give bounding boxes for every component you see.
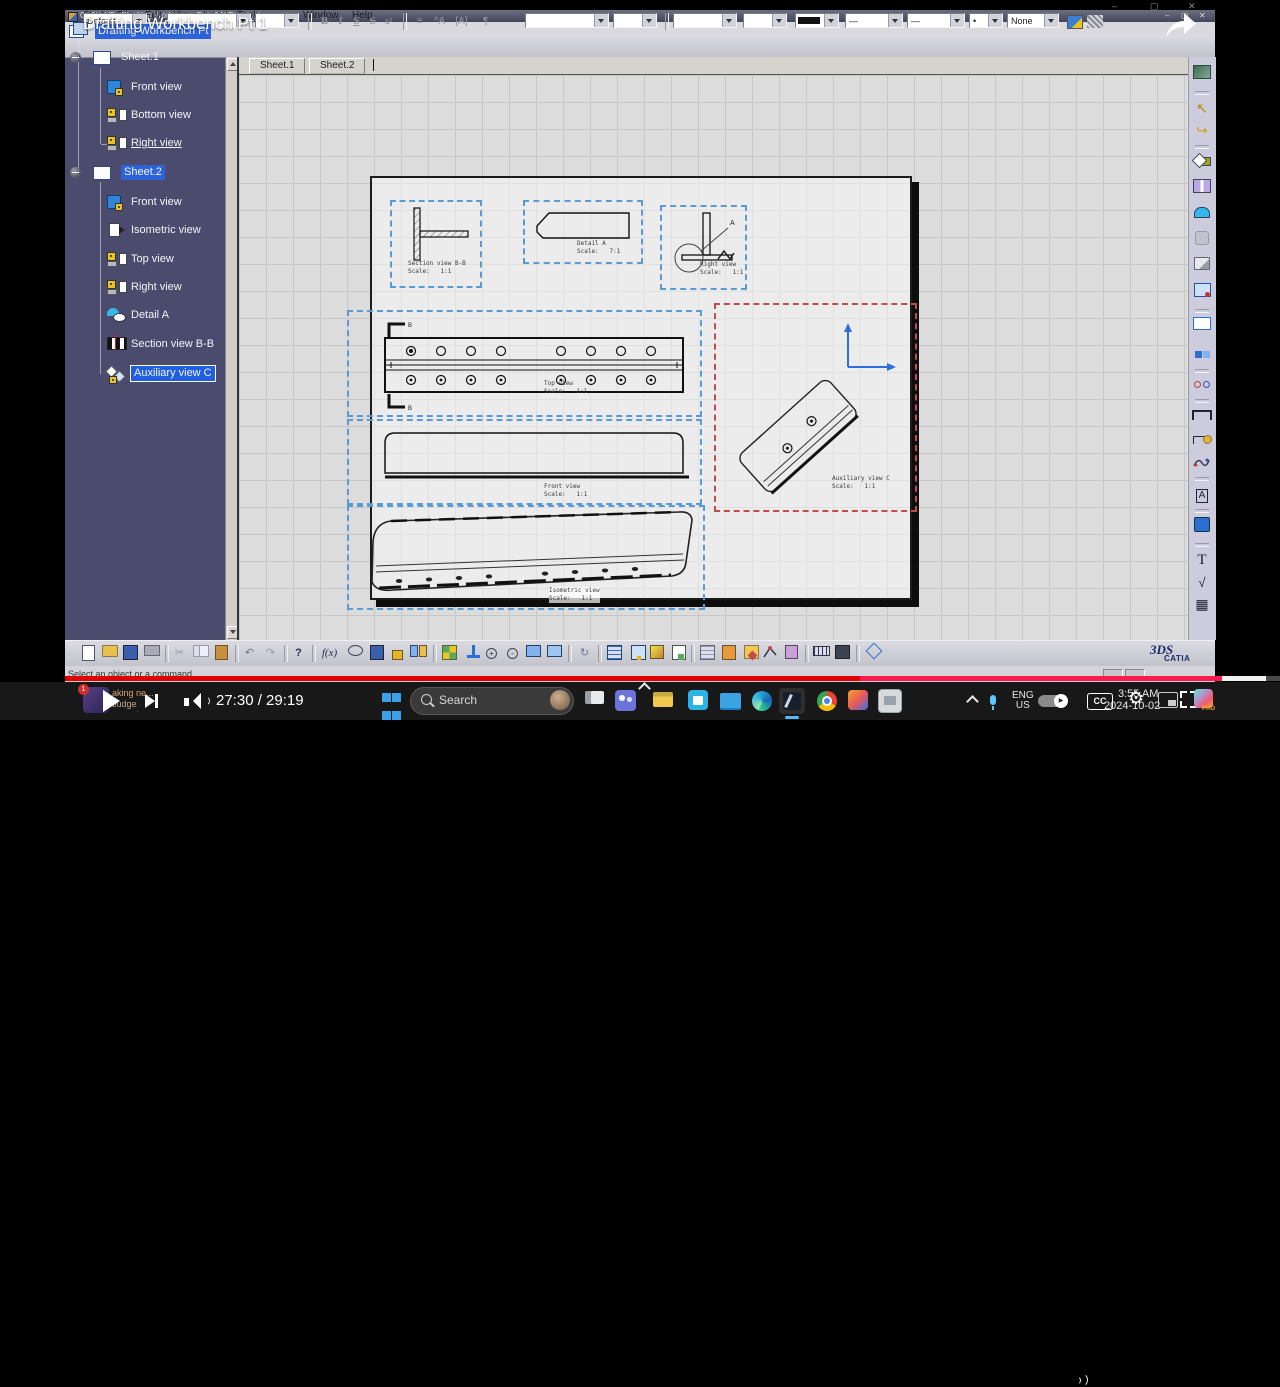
search-avatar[interactable] xyxy=(550,690,570,710)
progress-buffered xyxy=(1222,676,1266,681)
taskbar: 1 aking ne... Judge unseals cr... 27:30 … xyxy=(0,682,1280,720)
share-icon[interactable] xyxy=(1163,10,1199,40)
anchor-point-icon[interactable]: ^A xyxy=(431,14,448,29)
right-view-icon xyxy=(107,136,116,145)
auxiliary-view-label: Auxiliary view CScale: 1:1 xyxy=(832,475,890,491)
miniplayer-icon[interactable] xyxy=(1158,692,1178,708)
view-frame-front[interactable]: Front viewScale: 1:1 xyxy=(347,419,702,505)
top-view-label: Top viewScale: 1:1 xyxy=(544,380,587,396)
bottom-view-icon xyxy=(107,108,116,117)
new-document-icon[interactable] xyxy=(80,645,97,662)
eraser-icon[interactable] xyxy=(865,645,882,662)
save-icon[interactable] xyxy=(122,645,139,662)
auxiliary-view-tool-icon[interactable] xyxy=(1192,153,1212,172)
news-text[interactable]: aking ne... Judge unseals cr... xyxy=(112,688,168,712)
dress-up-icon[interactable] xyxy=(741,645,758,662)
layer-combobox[interactable] xyxy=(743,13,787,28)
right-view-label: Right viewScale: 1:1 xyxy=(700,261,743,277)
curve-dimension-icon[interactable] xyxy=(1192,455,1212,474)
cut-icon[interactable]: ✂ xyxy=(171,645,188,662)
catia-logo-text: CATIA xyxy=(1164,654,1190,663)
mail-icon[interactable] xyxy=(720,693,741,715)
linetype2-sample: — xyxy=(911,16,920,26)
notification-badge: 1 xyxy=(78,684,89,695)
svg-text:A: A xyxy=(730,220,735,227)
tree-s2-aux-label[interactable]: Auxiliary view C xyxy=(131,366,215,381)
autoplay-knob: ▶ xyxy=(1054,694,1068,708)
linetype-combobox[interactable]: — xyxy=(845,13,903,28)
top-view-icon xyxy=(107,252,116,261)
text-tool-icon[interactable]: T xyxy=(1192,551,1212,570)
superscript-button[interactable]: x² xyxy=(381,14,396,29)
linetype-sample: — xyxy=(849,16,858,26)
view-frame-section-bb[interactable]: Section view B-BScale: 1:1 xyxy=(390,200,482,288)
paintbrush-icon[interactable] xyxy=(1067,15,1083,29)
paste-icon[interactable] xyxy=(213,645,230,662)
progress-played xyxy=(65,676,860,681)
view-frame-detail-a[interactable]: Detail AScale: 7:1 xyxy=(523,200,643,264)
tree-s1-bottom-label[interactable]: Bottom view xyxy=(131,108,191,123)
frame-type-icon[interactable]: [A] xyxy=(453,14,470,29)
rendering-value: None xyxy=(1011,16,1033,26)
top-toolbar: Default ↖ B I S S x² ≡ ^A [A] ¶ xyxy=(65,34,1215,58)
lang-bottom: US xyxy=(1016,700,1030,711)
italic-button[interactable]: I xyxy=(333,14,348,29)
active-app-slot[interactable] xyxy=(779,688,805,714)
thickness-combobox[interactable] xyxy=(525,13,609,28)
tree-s2-top-label[interactable]: Top view xyxy=(131,252,174,267)
isometric-view-label: Isometric viewScale: 1:1 xyxy=(549,587,600,603)
right-view-sub-icon xyxy=(107,145,117,151)
time-display: 27:30 / 29:19 xyxy=(216,692,304,709)
group-combobox[interactable] xyxy=(673,13,737,28)
broken-view-tool-icon[interactable] xyxy=(1192,257,1212,276)
ms-store-icon[interactable] xyxy=(688,690,708,710)
datum-feature-icon[interactable] xyxy=(1192,517,1212,536)
progress-played-bright xyxy=(860,676,1222,681)
edge-icon[interactable] xyxy=(752,691,772,711)
top-view-sub-icon xyxy=(107,261,117,267)
volume-wave2-icon xyxy=(1074,1373,1088,1387)
section-view-icon xyxy=(107,337,127,350)
lock-icon[interactable] xyxy=(389,645,406,662)
spec-tree: Drafting Workbench Pt Sheet.1 Front view… xyxy=(65,58,225,641)
tab-sheet2[interactable]: Sheet.2 xyxy=(309,58,365,74)
strikethrough-button[interactable]: S xyxy=(365,14,380,29)
search-placeholder: Search xyxy=(439,693,477,707)
bottom-toolbar: ✂ ↶ ↷ ? f(x) + - ↻ xyxy=(65,640,1215,667)
app3-window-icon[interactable] xyxy=(878,689,902,713)
isometric-arrow-icon xyxy=(119,226,125,234)
drawing-canvas[interactable]: Section view B-BScale: 1:1 Detail AScale… xyxy=(239,74,1190,641)
start-button[interactable] xyxy=(382,690,403,711)
measure-icon[interactable] xyxy=(813,645,830,662)
drawing-area: Sheet.1 Sheet.2 Section vie xyxy=(237,57,1188,640)
copy-icon[interactable] xyxy=(192,645,209,662)
view-frame-right[interactable]: A Right viewScale: 1:1 xyxy=(660,205,747,290)
tree-sheet1-label[interactable]: Sheet.1 xyxy=(121,58,159,65)
detail-view-tool-icon[interactable] xyxy=(1192,205,1212,224)
open-icon[interactable] xyxy=(101,645,118,662)
dimension-tool-icon[interactable] xyxy=(1192,407,1212,426)
svg-text:B: B xyxy=(408,406,412,412)
formula-icon[interactable]: f(x) xyxy=(321,645,338,662)
snap-to-point-icon[interactable] xyxy=(627,645,644,662)
progress-remaining xyxy=(1266,676,1280,681)
comment-icon[interactable] xyxy=(347,645,364,662)
sheet-background-icon[interactable] xyxy=(669,645,686,662)
zoom-out-icon[interactable]: - xyxy=(504,645,521,662)
bold-button[interactable]: B xyxy=(317,14,332,29)
linetype2-combobox[interactable]: — xyxy=(907,13,965,28)
weight-combobox[interactable] xyxy=(613,13,657,28)
search-icon xyxy=(421,694,432,705)
hatch-icon[interactable] xyxy=(1087,15,1103,28)
catia-window: CATIA V5 - [Drafting Workbench Pt 1.CATD… xyxy=(65,10,1215,682)
kinematics-icon[interactable] xyxy=(762,645,779,662)
tree-s2-detail-label[interactable]: Detail A xyxy=(131,308,169,323)
underline-button[interactable]: S xyxy=(349,14,364,29)
chained-dimension-icon[interactable] xyxy=(1192,431,1212,450)
right-view-page-icon xyxy=(119,281,127,293)
tree-s2-front-label[interactable]: Front view xyxy=(131,195,182,210)
new-view-icon[interactable] xyxy=(1192,317,1212,336)
tab-sheet1[interactable]: Sheet.1 xyxy=(249,58,305,74)
text-frame-icon[interactable]: A xyxy=(1192,485,1212,504)
position-icon[interactable] xyxy=(783,645,800,662)
whats-this-icon[interactable]: ? xyxy=(290,645,307,662)
catia-logo: 3DS CATIA xyxy=(1150,642,1210,666)
grid2-icon[interactable] xyxy=(699,645,716,662)
right-view-icon xyxy=(107,280,116,289)
play-button[interactable] xyxy=(103,690,120,712)
volume-icon[interactable] xyxy=(184,693,201,711)
view-layout-icon[interactable] xyxy=(1192,345,1212,364)
language-indicator[interactable]: ENG US xyxy=(1012,691,1034,711)
tree-s1-right-label[interactable]: Right view xyxy=(131,136,182,151)
pro-badge: PRO xyxy=(1202,706,1215,712)
render-faces-icon[interactable] xyxy=(834,645,851,662)
view-wizard-icon[interactable] xyxy=(1192,283,1212,302)
zoom-in-icon[interactable]: + xyxy=(483,645,500,662)
catia-app-icon xyxy=(68,12,78,22)
chevron-up-icon[interactable] xyxy=(638,682,651,695)
view-frame-auxiliary-c[interactable]: Auxiliary view CScale: 1:1 xyxy=(714,303,917,512)
color-combobox[interactable] xyxy=(795,13,839,28)
tree-sheet2-label[interactable]: Sheet.2 xyxy=(121,165,165,180)
collapse-handle-icon[interactable] xyxy=(70,58,81,63)
calculator-icon[interactable] xyxy=(368,645,385,662)
svg-text:B: B xyxy=(408,323,412,329)
collapse-handle-icon[interactable] xyxy=(70,167,81,178)
video-frame: – ▢ ✕ CATIA V5 - [Drafting Workbench Pt … xyxy=(0,0,1280,720)
chrome-icon[interactable] xyxy=(817,691,837,711)
undo-icon[interactable]: ↶ xyxy=(241,645,258,662)
select-arrow-icon[interactable]: ↖ xyxy=(1192,99,1212,118)
section-line-icon xyxy=(115,335,116,350)
app2-icon[interactable] xyxy=(848,690,868,710)
show-frame-icon[interactable] xyxy=(720,645,737,662)
tree-s2-section-label[interactable]: Section view B-B xyxy=(131,337,214,352)
sheet-icon xyxy=(93,166,111,180)
right-toolbar: ↖ ↪ A T √ ▦ xyxy=(1188,57,1216,640)
normal-view-icon[interactable] xyxy=(525,645,542,662)
refresh-icon[interactable]: ↻ xyxy=(576,645,593,662)
table-tool-icon[interactable]: ▦ xyxy=(1192,595,1212,614)
sheet-icon xyxy=(93,58,111,65)
detail-ellipse-icon xyxy=(113,313,126,322)
right-view-sub-icon xyxy=(107,289,117,295)
section-view-tool-icon[interactable] xyxy=(1192,179,1212,198)
justify-icon[interactable]: ≡ xyxy=(411,14,428,29)
right-view-page-icon xyxy=(119,137,127,149)
view-frame-isometric[interactable]: Isometric viewScale: 1:1 xyxy=(347,505,705,610)
settings-gear-icon[interactable]: ⚙ xyxy=(1128,688,1144,709)
next-button[interactable] xyxy=(145,694,158,713)
detail-view-label: Detail AScale: 7:1 xyxy=(577,240,620,256)
rendering-combobox[interactable]: None xyxy=(1007,13,1059,28)
link-manager-icon[interactable] xyxy=(410,645,427,662)
pointtype-combobox[interactable]: • xyxy=(969,13,1003,28)
tray-chevron-icon[interactable] xyxy=(966,695,979,708)
video-progressbar[interactable] xyxy=(65,676,1280,681)
tree-s1-front-label[interactable]: Front view xyxy=(131,80,182,95)
microphone-icon[interactable] xyxy=(990,692,996,710)
front-view-label: Front viewScale: 1:1 xyxy=(544,483,587,499)
update-sweep-icon[interactable]: ↪ xyxy=(1192,121,1212,140)
view-lock-icon xyxy=(109,376,117,384)
task-view-icon[interactable] xyxy=(585,691,604,709)
pointtype-sample: • xyxy=(973,16,976,26)
geometry-points-icon[interactable] xyxy=(1192,375,1212,394)
clipping-view-tool-icon[interactable] xyxy=(1192,231,1212,250)
catia-close-icon[interactable]: ✕ xyxy=(1199,11,1206,21)
geometric-tolerance-icon[interactable]: √ xyxy=(1192,573,1212,592)
autoplay-toggle[interactable]: ▶ xyxy=(1038,695,1066,707)
search-input[interactable]: Search xyxy=(410,687,574,715)
file-explorer-icon[interactable] xyxy=(653,692,673,712)
redo-icon[interactable]: ↷ xyxy=(262,645,279,662)
active-app-indicator xyxy=(785,716,799,719)
sheet-tabs: Sheet.1 Sheet.2 xyxy=(239,57,1188,74)
bottom-view-page-icon xyxy=(119,109,127,121)
bottom-view-sub-icon xyxy=(107,117,117,123)
section-view-label: Section view B-BScale: 1:1 xyxy=(408,260,466,276)
color-swatch xyxy=(798,17,820,24)
teams-icon[interactable] xyxy=(615,690,636,711)
wireframe-tools-icon[interactable] xyxy=(1192,65,1212,84)
grid-icon[interactable] xyxy=(606,645,623,662)
print-icon[interactable] xyxy=(143,645,160,662)
video-title-overlay: Drafting Workbench Pt 1 xyxy=(83,14,268,34)
view-frame-top[interactable]: B B Top viewScale: 1:1 xyxy=(347,310,702,417)
view-lock-icon xyxy=(115,88,123,96)
multi-view-icon[interactable] xyxy=(546,645,563,662)
analysis-display-icon[interactable] xyxy=(648,645,665,662)
fit-all-in-icon[interactable] xyxy=(441,645,458,662)
text-caret xyxy=(373,59,374,71)
tree-s2-iso-label[interactable]: Isometric view xyxy=(131,223,201,238)
view-lock-icon xyxy=(115,203,123,211)
top-view-page-icon xyxy=(119,253,127,265)
insert-symbol-icon[interactable]: ¶ xyxy=(477,14,494,29)
tree-s2-right-label[interactable]: Right view xyxy=(131,280,182,295)
pan-icon[interactable] xyxy=(462,645,479,662)
